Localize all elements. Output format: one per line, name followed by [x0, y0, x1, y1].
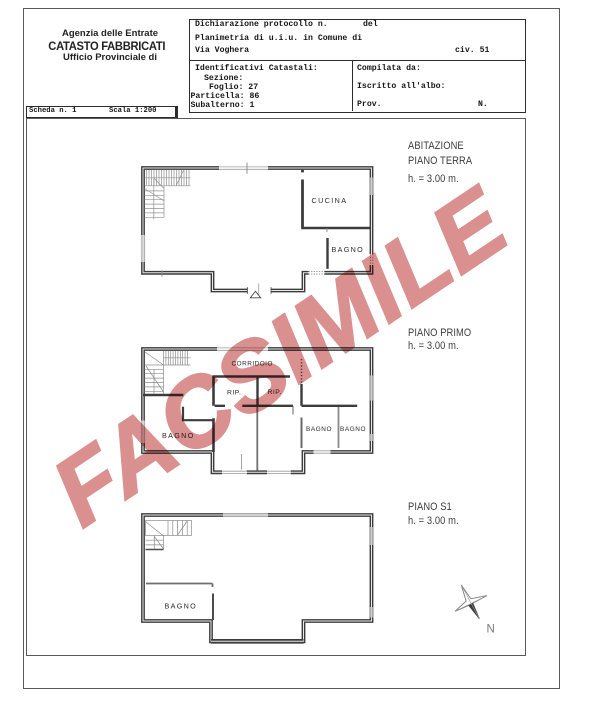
svg-text:FACSIMILE: FACSIMILE: [34, 167, 527, 546]
